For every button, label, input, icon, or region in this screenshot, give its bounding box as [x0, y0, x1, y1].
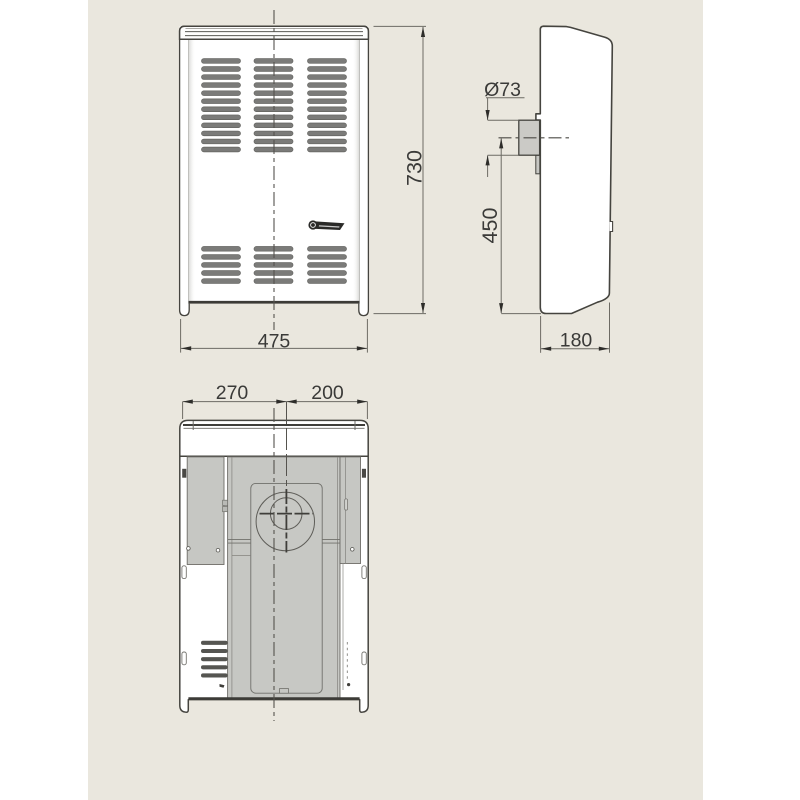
- svg-text:200: 200: [311, 382, 344, 404]
- svg-text:475: 475: [258, 330, 291, 352]
- svg-text:180: 180: [560, 329, 593, 351]
- svg-text:450: 450: [478, 208, 502, 244]
- svg-text:270: 270: [216, 382, 249, 404]
- svg-text:730: 730: [403, 150, 427, 186]
